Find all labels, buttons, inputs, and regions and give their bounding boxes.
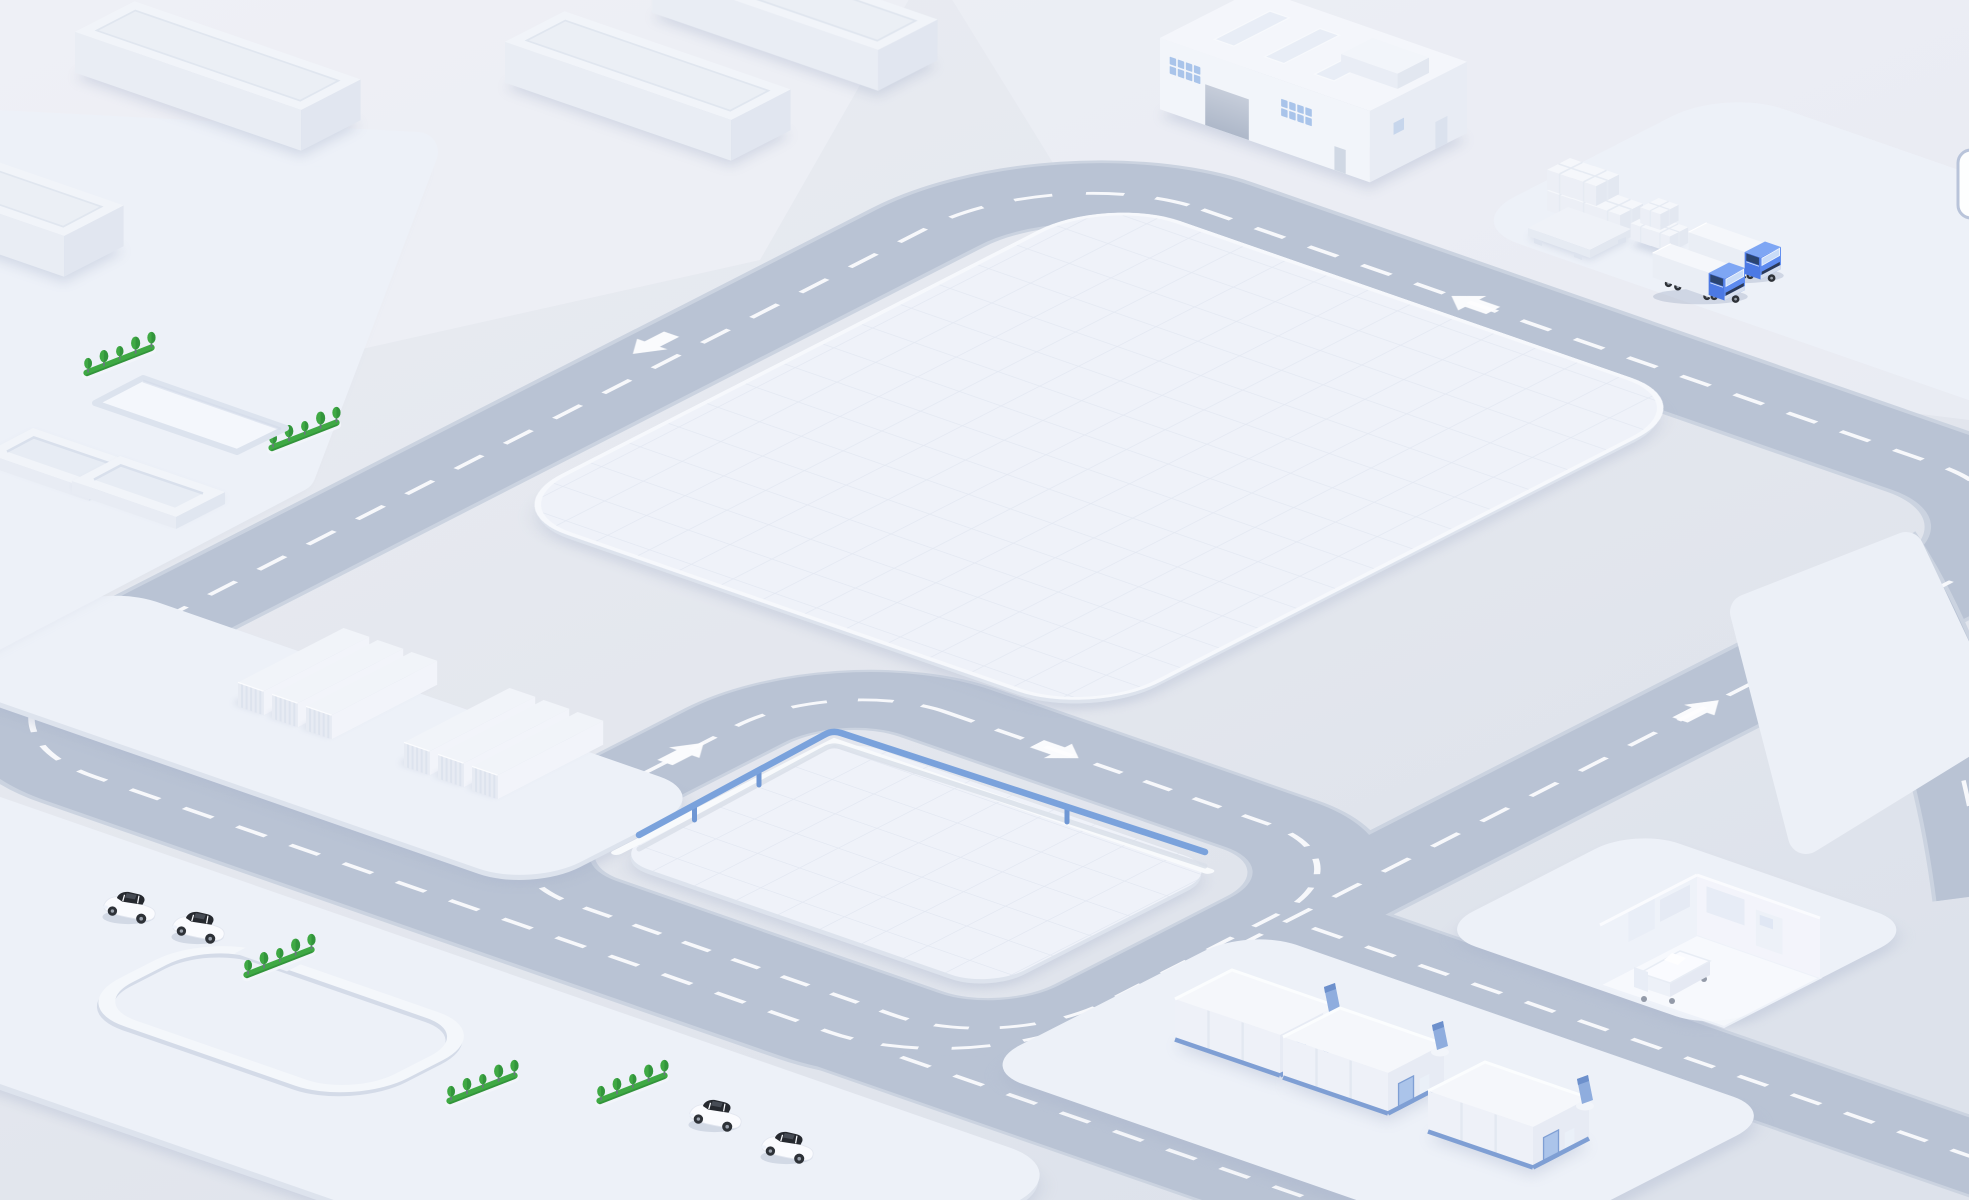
side-panel-toggle-button[interactable] xyxy=(1958,150,1969,218)
factory-door xyxy=(1334,146,1345,174)
isometric-scene xyxy=(0,0,1969,1200)
